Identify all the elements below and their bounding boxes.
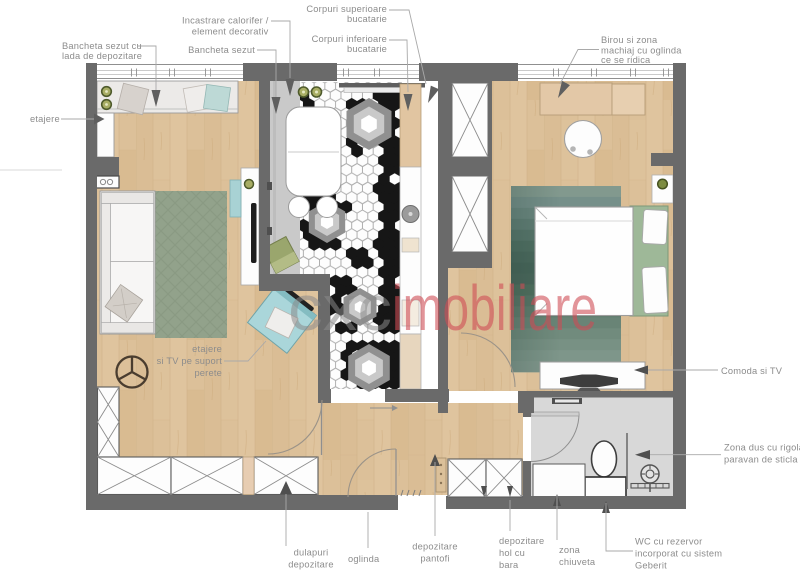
svg-text:si TV pe suport: si TV pe suport [157, 356, 223, 366]
svg-text:Comoda si TV: Comoda si TV [721, 366, 783, 376]
svg-text:depozitare: depozitare [499, 536, 544, 546]
svg-text:bucatarie: bucatarie [347, 14, 387, 24]
svg-text:ce se ridica: ce se ridica [601, 55, 651, 65]
svg-text:Incastrare calorifer /: Incastrare calorifer / [182, 16, 269, 26]
svg-text:etajere: etajere [30, 114, 60, 124]
svg-text:imobiliare: imobiliare [392, 272, 597, 344]
svg-text:paravan de sticla: paravan de sticla [724, 455, 798, 465]
svg-text:lada de depozitare: lada de depozitare [62, 51, 142, 61]
svg-text:dulapuri: dulapuri [294, 548, 329, 558]
svg-text:Bancheta sezut cu: Bancheta sezut cu [62, 41, 142, 51]
svg-text:chiuveta: chiuveta [559, 557, 596, 567]
svg-text:depozitare: depozitare [288, 560, 333, 570]
svg-text:Corpuri superioare: Corpuri superioare [306, 4, 387, 14]
svg-text:bucatarie: bucatarie [347, 44, 387, 54]
svg-text:bara: bara [499, 560, 519, 570]
svg-text:incorporat cu sistem: incorporat cu sistem [635, 549, 722, 559]
svg-text:WC cu rezervor: WC cu rezervor [635, 537, 702, 547]
svg-text:hol cu: hol cu [499, 548, 525, 558]
svg-text:perete: perete [194, 368, 222, 378]
svg-text:depozitare: depozitare [412, 542, 457, 552]
svg-text:Zona dus cu rigola si: Zona dus cu rigola si [724, 443, 800, 453]
svg-text:etajere: etajere [192, 344, 222, 354]
svg-text:cxc: cxc [288, 272, 392, 344]
svg-text:machiaj cu oglinda: machiaj cu oglinda [601, 46, 682, 56]
svg-text:element decorativ: element decorativ [192, 27, 269, 37]
svg-text:pantofi: pantofi [420, 554, 449, 564]
svg-text:oglinda: oglinda [348, 554, 380, 564]
svg-text:Birou si zona: Birou si zona [601, 35, 658, 45]
svg-text:zona: zona [559, 545, 581, 555]
svg-text:Corpuri inferioare: Corpuri inferioare [312, 34, 387, 44]
svg-text:Bancheta sezut: Bancheta sezut [188, 45, 255, 55]
svg-text:Geberit: Geberit [635, 561, 667, 571]
